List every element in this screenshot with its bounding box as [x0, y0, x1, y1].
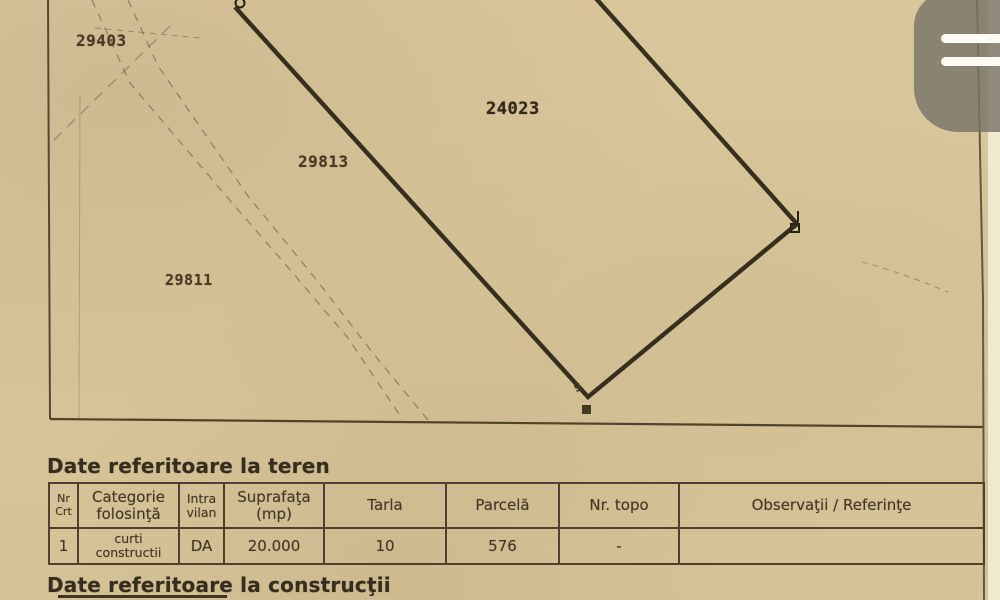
teren-table: Nr Crt Categorie folosinţă Intra vilan S… — [48, 482, 985, 565]
cell-nr-topo: - — [559, 528, 679, 564]
parcel-label-29403: 29403 — [76, 31, 127, 50]
faint-contour-line — [862, 262, 948, 292]
cell-observatii — [679, 528, 984, 564]
col-header-suprafata: Suprafaţa (mp) — [224, 483, 324, 528]
teren-table-data-row: 1 curti constructii DA 20.000 10 576 - — [49, 528, 984, 564]
map-frame-bottom — [50, 419, 983, 427]
col-header-nr-crt: Nr Crt — [49, 483, 78, 528]
col-header-parcela: Parcelă — [446, 483, 559, 528]
drag-handle-icon — [941, 34, 1000, 43]
dashed-road-line-right — [128, 0, 428, 420]
cell-nr-crt: 1 — [49, 528, 78, 564]
cell-suprafata: 20.000 — [224, 528, 324, 564]
col-header-tarla: Tarla — [324, 483, 446, 528]
col-header-observatii: Observaţii / Referinţe — [679, 483, 984, 528]
teren-table-header-row: Nr Crt Categorie folosinţă Intra vilan S… — [49, 483, 984, 528]
corner-marker-bottom — [582, 405, 591, 414]
faint-vertical-boundary — [79, 95, 80, 418]
cell-intravilan: DA — [179, 528, 224, 564]
constructii-section-heading: Date referitoare la construcţii — [47, 573, 391, 597]
cell-parcela: 576 — [446, 528, 559, 564]
col-header-categorie-folosinta: Categorie folosinţă — [78, 483, 179, 528]
drag-handle-icon — [941, 57, 1000, 66]
col-header-nr-topo: Nr. topo — [559, 483, 679, 528]
parcel-label-29813: 29813 — [298, 152, 349, 171]
floating-handle-overlay[interactable] — [914, 0, 1000, 132]
cell-categorie-folosinta: curti constructii — [78, 528, 179, 564]
scanned-cadastral-document: 29403 29813 29811 24023 9 Date referitoa… — [0, 0, 1000, 600]
constructii-table-top-border — [58, 595, 227, 598]
col-header-intravilan: Intra vilan — [179, 483, 224, 528]
corner-marker-top — [236, 0, 245, 8]
parcel-boundary — [235, 0, 797, 397]
teren-section-heading: Date referitoare la teren — [47, 454, 330, 478]
main-parcel-label-24023: 24023 — [486, 99, 540, 119]
dashed-road-line-left — [92, 0, 403, 420]
cell-tarla: 10 — [324, 528, 446, 564]
parcel-label-29811: 29811 — [165, 271, 213, 289]
map-frame-left — [48, 0, 50, 419]
